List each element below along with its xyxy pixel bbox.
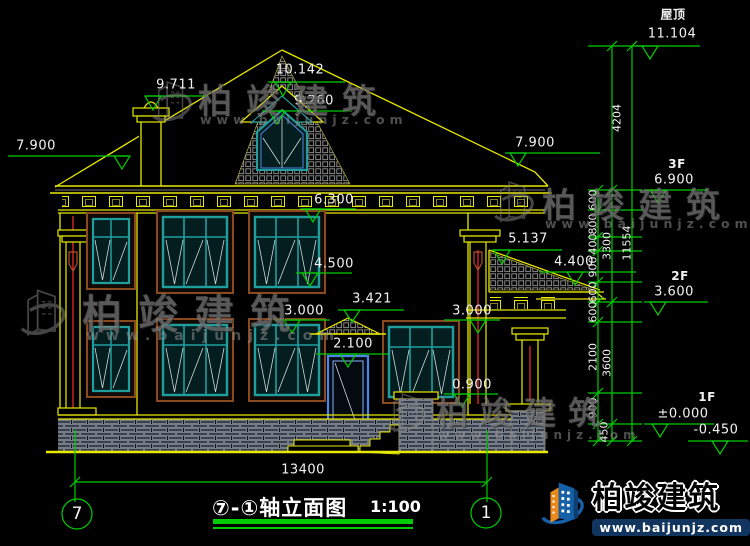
axis-bubble-1: 1 [481,503,492,523]
elevation-mark-cornice: 6.300 [314,193,354,208]
elevation-mark-canopy: 3.421 [352,292,392,307]
title-underline-thick [213,519,413,524]
dim-chain-900a: 900 [587,257,600,278]
second-floor-windows [87,211,325,293]
level-below-value: -0.450 [694,423,739,438]
watermark-url: www.baijunjz.com [545,216,750,231]
watermark-url: www.baijunjz.com [200,112,408,127]
elevation-mark-eave-left: 7.900 [16,139,56,154]
elevation-mark-chimney-top: 9.711 [156,78,196,93]
level-2f-label: 2F [671,269,689,283]
drawing-scale: 1:100 [370,497,421,516]
level-roof-label: 屋顶 [660,6,685,23]
chimney [133,102,169,188]
axis-bubble-7: 7 [72,504,83,524]
company-logo: 柏竣建筑 www.baijunjz.com [538,462,750,546]
title-underline-thin [213,527,413,529]
level-1f-value: ±0.000 [657,407,708,422]
dim-width-13400: 13400 [281,463,325,478]
brand-logo-icon [538,465,586,543]
level-2f-value: 3.600 [654,285,694,300]
dim-chain-2100: 2100 [587,343,600,371]
dim-chain-600b: 600 [587,282,600,303]
watermark-url: www.baijunjz.com [438,428,641,442]
dim-group-3600: 3600 [601,349,614,377]
dim-group-3300: 3300 [601,232,614,260]
elevation-mark-eave-right: 7.900 [515,136,555,151]
company-logo-brand: 柏竣建筑 [592,473,750,517]
elevation-mark-sill-2f: 4.500 [314,257,354,272]
company-logo-url: www.baijunjz.com [592,519,750,536]
elevation-mark-level-right: 3.000 [452,304,492,319]
watermark-url: www.baijunjz.com [86,328,341,344]
drawing-title: ⑦-①轴立面图 [212,492,347,522]
dim-chain-600c: 600 [587,302,600,323]
elevation-mark-porch-ridge: 5.137 [508,232,548,247]
dim-chain-400: 400 [587,234,600,255]
dim-group-4204: 4204 [611,104,624,132]
level-1f-label: 1F [698,390,716,404]
cad-elevation-canvas: 9.711 10.142 9.260 7.900 7.900 6.300 4.5… [0,0,750,546]
level-3f-label: 3F [668,157,686,171]
level-roof-value: 11.104 [648,27,697,42]
